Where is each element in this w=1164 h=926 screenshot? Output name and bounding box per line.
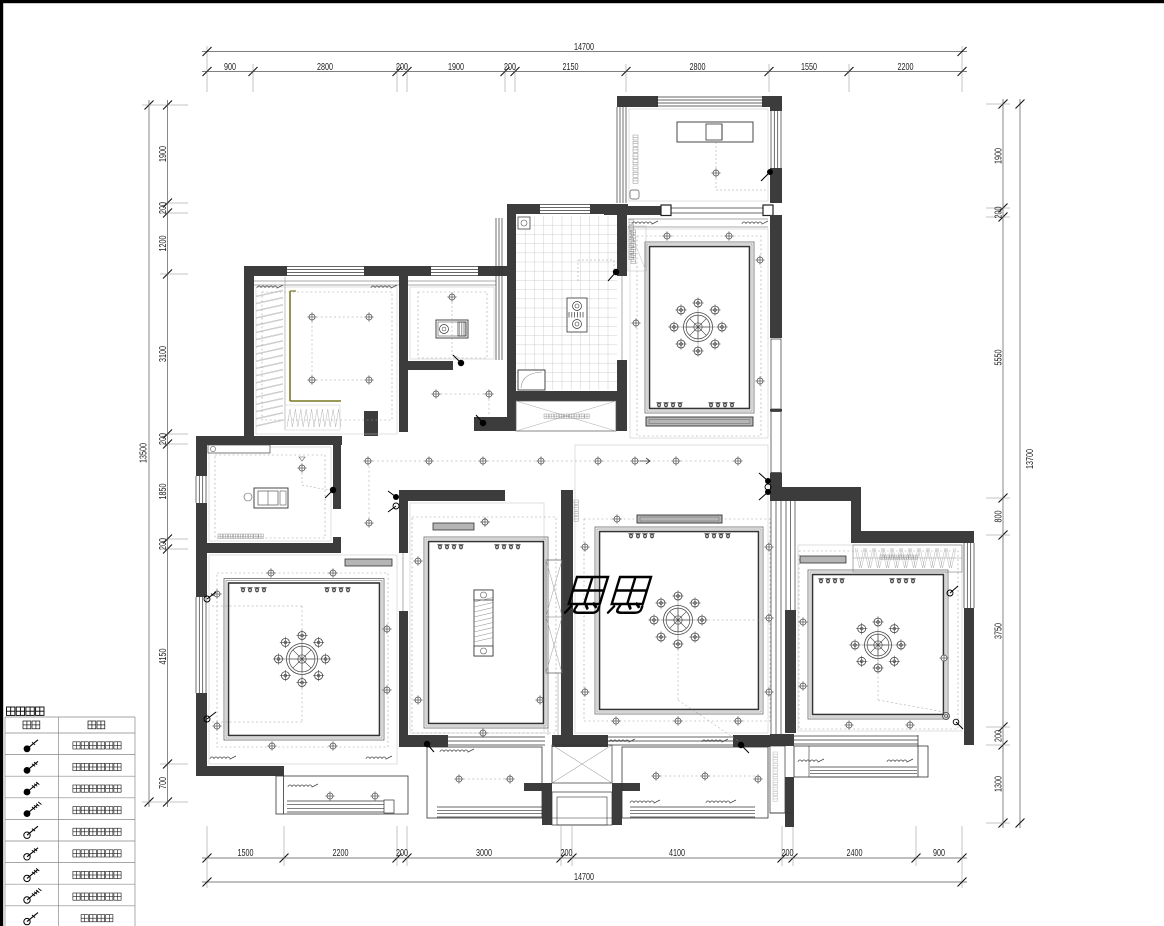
svg-text:200: 200	[396, 847, 408, 859]
svg-text:3750: 3750	[993, 623, 1005, 639]
svg-text:200: 200	[504, 61, 516, 73]
svg-text:1900: 1900	[157, 146, 169, 162]
svg-text:2150: 2150	[563, 61, 579, 73]
svg-text:1200: 1200	[157, 235, 169, 251]
svg-text:2200: 2200	[898, 61, 914, 73]
svg-text:1300: 1300	[993, 776, 1005, 792]
svg-text:13700: 13700	[1024, 449, 1036, 469]
svg-text:2800: 2800	[690, 61, 706, 73]
svg-text:1850: 1850	[157, 483, 169, 499]
svg-text:5550: 5550	[993, 349, 1005, 365]
svg-text:1900: 1900	[448, 61, 464, 73]
svg-text:700: 700	[157, 777, 169, 789]
svg-text:200: 200	[993, 730, 1005, 742]
svg-text:200: 200	[157, 538, 169, 550]
svg-text:2800: 2800	[317, 61, 333, 73]
svg-text:200: 200	[782, 847, 794, 859]
svg-text:1550: 1550	[801, 61, 817, 73]
svg-text:14700: 14700	[574, 41, 594, 53]
svg-text:3000: 3000	[476, 847, 492, 859]
svg-text:14700: 14700	[574, 871, 594, 883]
svg-text:1500: 1500	[238, 847, 254, 859]
svg-text:900: 900	[933, 847, 945, 859]
svg-text:800: 800	[993, 510, 1005, 522]
svg-text:900: 900	[224, 61, 236, 73]
svg-text:2200: 2200	[333, 847, 349, 859]
svg-text:200: 200	[561, 847, 573, 859]
svg-text:3100: 3100	[157, 346, 169, 362]
svg-text:13500: 13500	[138, 443, 150, 463]
svg-text:4150: 4150	[157, 648, 169, 664]
svg-text:200: 200	[396, 61, 408, 73]
svg-text:2400: 2400	[847, 847, 863, 859]
svg-text:200: 200	[157, 202, 169, 214]
svg-text:200: 200	[993, 206, 1005, 218]
svg-text:4100: 4100	[669, 847, 685, 859]
svg-text:200: 200	[157, 433, 169, 445]
svg-text:1900: 1900	[993, 148, 1005, 164]
